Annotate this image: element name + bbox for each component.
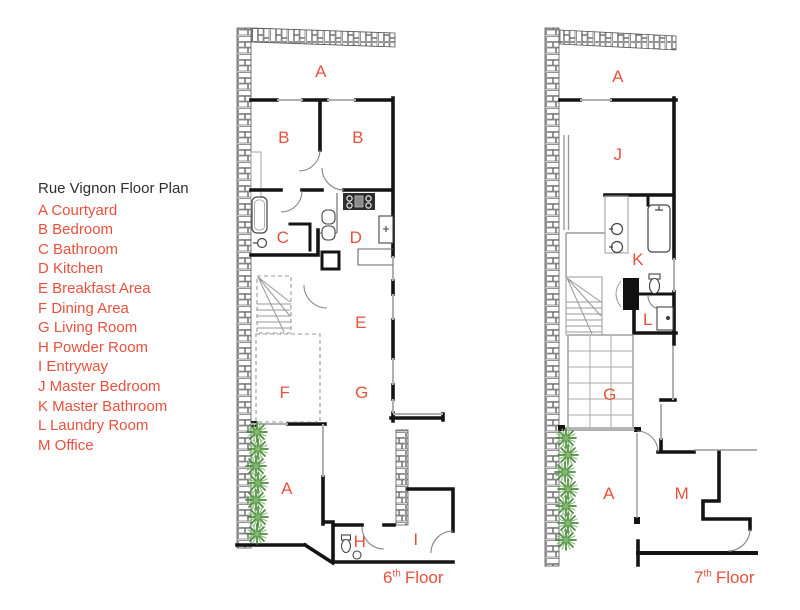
legend-item-k: K Master Bathroom bbox=[38, 397, 189, 417]
floor6-toilet-icon bbox=[342, 535, 351, 553]
floor6-bath-sink-icon bbox=[253, 239, 267, 248]
legend-item-e: E Breakfast Area bbox=[38, 279, 189, 299]
legend-item-b: B Bedroom bbox=[38, 220, 189, 240]
floor7-label-living-room: G bbox=[603, 385, 617, 405]
legend-item-f: F Dining Area bbox=[38, 299, 189, 319]
floor6-stairs-icon bbox=[257, 277, 291, 332]
floor6-label-powder-room: H bbox=[354, 532, 367, 552]
legend-item-m: M Office bbox=[38, 436, 189, 456]
floor6-label-bedroom-left: B bbox=[278, 128, 290, 148]
floor7-toilet-icon bbox=[649, 274, 660, 294]
floor6-caption-word: Floor bbox=[405, 568, 444, 587]
floor6-stove-icon bbox=[343, 193, 375, 210]
floor6-label-living-room: G bbox=[355, 383, 369, 403]
floor6-label-courtyard-bottom: A bbox=[281, 479, 293, 499]
legend-item-j: J Master Bedroom bbox=[38, 377, 189, 397]
floor6-label-courtyard-top: A bbox=[315, 62, 327, 82]
floor6-caption: 6thFloor bbox=[383, 568, 444, 588]
floor7-skylight-grid bbox=[568, 335, 633, 428]
legend-item-g: G Living Room bbox=[38, 318, 189, 338]
floor6-door-arcs bbox=[281, 150, 453, 553]
floor6-closet bbox=[322, 252, 339, 269]
floor7-label-master-bathroom: K bbox=[632, 250, 644, 270]
legend-item-c: C Bathroom bbox=[38, 240, 189, 260]
legend-item-i: I Entryway bbox=[38, 357, 189, 377]
floor7-washer-icon bbox=[657, 307, 673, 330]
floor6-powder-sink-icon bbox=[353, 551, 361, 559]
floor7-label-office: M bbox=[675, 484, 690, 504]
legend-title: Rue Vignon Floor Plan bbox=[38, 179, 189, 199]
floor6-caption-suffix: th bbox=[392, 568, 400, 579]
legend-item-d: D Kitchen bbox=[38, 259, 189, 279]
floor6-label-bedroom-right: B bbox=[352, 128, 364, 148]
floor7-sink-icons bbox=[609, 224, 623, 253]
floor6-label-bathroom: C bbox=[277, 228, 290, 248]
floor7-plan bbox=[545, 28, 757, 566]
legend-item-a: A Courtyard bbox=[38, 201, 189, 221]
floor7-chimney bbox=[616, 278, 639, 310]
legend: Rue Vignon Floor Plan A Courtyard B Bedr… bbox=[38, 179, 189, 455]
legend-item-l: L Laundry Room bbox=[38, 416, 189, 436]
floor7-label-master-bedroom: J bbox=[614, 145, 623, 165]
legend-item-h: H Powder Room bbox=[38, 338, 189, 358]
floor6-walls bbox=[237, 98, 453, 563]
floor7-caption-suffix: th bbox=[703, 568, 711, 579]
floor6-bathtub-icon bbox=[252, 197, 267, 233]
floor7-caption-word: Floor bbox=[716, 568, 755, 587]
floor6-label-kitchen: D bbox=[350, 228, 363, 248]
floor6-label-breakfast-area: E bbox=[355, 313, 367, 333]
floor6-label-dining-area: F bbox=[280, 383, 291, 403]
floor7-label-courtyard-bottom: A bbox=[603, 484, 615, 504]
floor7-label-laundry-room: L bbox=[643, 310, 653, 330]
floor7-stairs-icon bbox=[566, 277, 602, 335]
floor6-label-entryway: I bbox=[413, 530, 418, 550]
floor6-plan bbox=[237, 28, 453, 563]
floor7-bathtub-icon bbox=[648, 205, 670, 252]
floor7-caption: 7thFloor bbox=[694, 568, 755, 588]
floor6-fridge-icon bbox=[379, 216, 393, 243]
floor6-kitchen-sink-icon bbox=[322, 210, 335, 240]
floor6-windows bbox=[251, 100, 443, 477]
floor-plan-page: Rue Vignon Floor Plan A Courtyard B Bedr… bbox=[0, 0, 800, 610]
floor7-label-courtyard-top: A bbox=[612, 67, 624, 87]
